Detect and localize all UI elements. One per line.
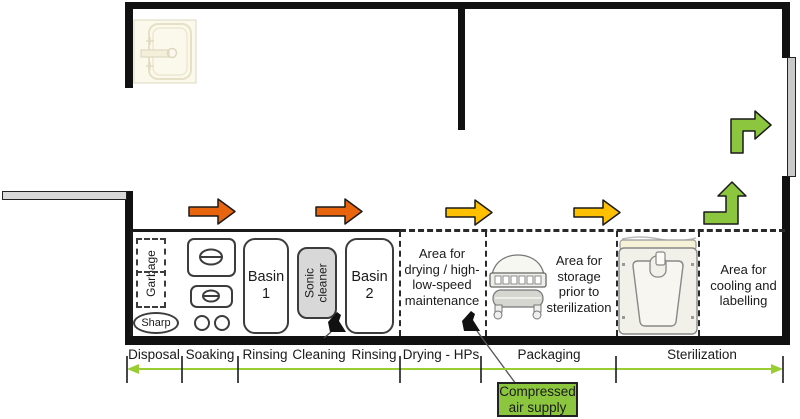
area-storage-label: Area for storage prior to sterilization xyxy=(543,253,615,315)
sonic-cleaner: Sonic cleaner xyxy=(297,247,337,319)
soaking-tub-1 xyxy=(187,238,236,277)
flow-arrow-turn-up xyxy=(704,182,746,224)
wall-left-upper xyxy=(125,2,133,88)
flow-arrow-2 xyxy=(316,199,362,224)
zone-label-drying-hps: Drying - HPs xyxy=(396,347,486,362)
flow-arrow-4 xyxy=(574,200,620,225)
basin-1-label: Basin 1 xyxy=(248,269,284,303)
air-gun-icon xyxy=(462,311,480,331)
area-cooling-label: Area for cooling and labelling xyxy=(700,262,787,309)
partition-wall xyxy=(458,2,465,130)
zone-label-packaging: Packaging xyxy=(504,347,594,362)
exit-door xyxy=(787,57,796,177)
bench-top-edge-solid xyxy=(130,229,400,232)
flow-arrow-1 xyxy=(189,199,235,224)
area-drying-label: Area for drying / high- low-speed mainte… xyxy=(399,246,485,308)
garbage-bin-divider xyxy=(136,271,166,273)
flow-arrow-3 xyxy=(446,200,492,225)
sharps-label: Sharp xyxy=(141,317,170,329)
garbage-bin: Garbage xyxy=(136,238,166,308)
wall-bottom xyxy=(125,336,790,345)
sharps-container: Sharp xyxy=(133,312,179,334)
basin-2: Basin 2 xyxy=(345,238,394,334)
sterilizer-icon xyxy=(619,237,697,334)
basin-1: Basin 1 xyxy=(243,238,289,334)
sterilization-room-floorplan: Garbage Sharp Basin 1 Sonic cleaner Basi… xyxy=(0,0,800,419)
bench-top-edge-dashed xyxy=(400,229,785,232)
beaker-icons xyxy=(195,316,229,330)
flow-arrow-exit xyxy=(731,111,771,153)
zone-divider-sterilization xyxy=(616,231,618,336)
zone-label-sterilization: Sterilization xyxy=(652,347,752,362)
pouch-sealer-icon xyxy=(490,255,546,319)
sink-icon xyxy=(134,20,196,83)
compressed-air-supply-label: Compressed air supply xyxy=(497,382,578,417)
garbage-label: Garbage xyxy=(145,250,158,297)
wall-right-upper xyxy=(782,2,790,58)
basin-2-label: Basin 2 xyxy=(351,269,387,303)
wall-right-lower xyxy=(782,176,790,345)
entry-pass-through-counter xyxy=(2,191,127,200)
soaking-tub-2 xyxy=(190,285,233,308)
zone-divider-packaging xyxy=(485,231,487,336)
sonic-cleaner-label: Sonic cleaner xyxy=(304,263,330,302)
